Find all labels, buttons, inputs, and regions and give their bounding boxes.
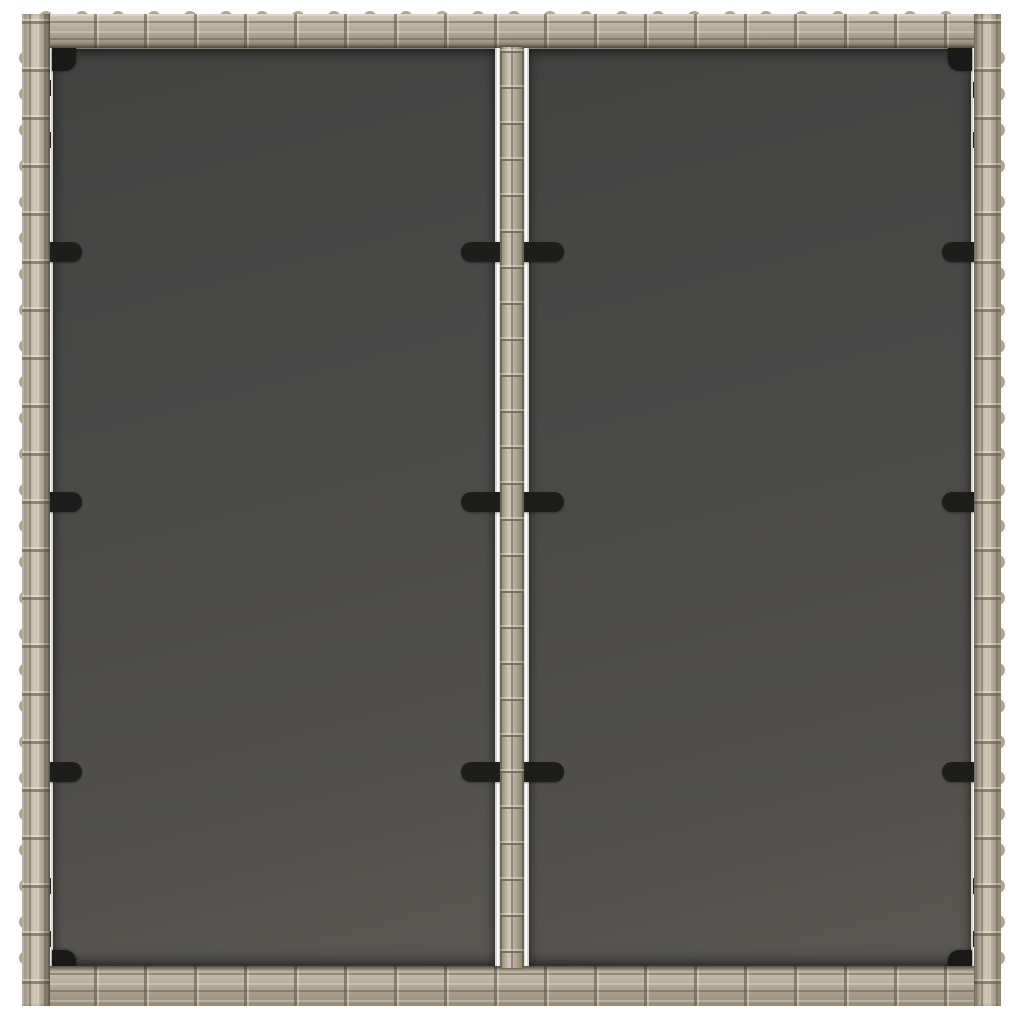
corner-bracket-top-right: [948, 48, 972, 71]
divider-clip-left-middle: [461, 492, 502, 512]
frame-outer-bumps-right: [1000, 40, 1009, 970]
fastener-clip-left-top: [47, 242, 82, 262]
glass-panel-left: [51, 47, 497, 968]
rattan-frame-top: [22, 14, 1001, 48]
product-image: [0, 0, 1024, 1024]
glass-panel-right: [527, 47, 973, 968]
divider-clip-left-top: [461, 242, 502, 262]
rattan-frame-bottom: [22, 966, 1001, 1006]
fastener-clip-right-middle: [942, 492, 977, 512]
fastener-clip-right-top: [942, 242, 977, 262]
divider-clip-right-bottom: [523, 762, 564, 782]
corner-bracket-top-left: [52, 48, 76, 71]
divider-clip-right-middle: [523, 492, 564, 512]
divider-clip-right-top: [523, 242, 564, 262]
fastener-clip-left-bottom: [47, 762, 82, 782]
rattan-frame-right: [974, 14, 1001, 1006]
center-divider-strip: [500, 47, 524, 968]
fastener-clip-right-bottom: [942, 762, 977, 782]
fastener-clip-left-middle: [47, 492, 82, 512]
divider-clip-left-bottom: [461, 762, 502, 782]
rattan-frame-left: [22, 14, 50, 1006]
